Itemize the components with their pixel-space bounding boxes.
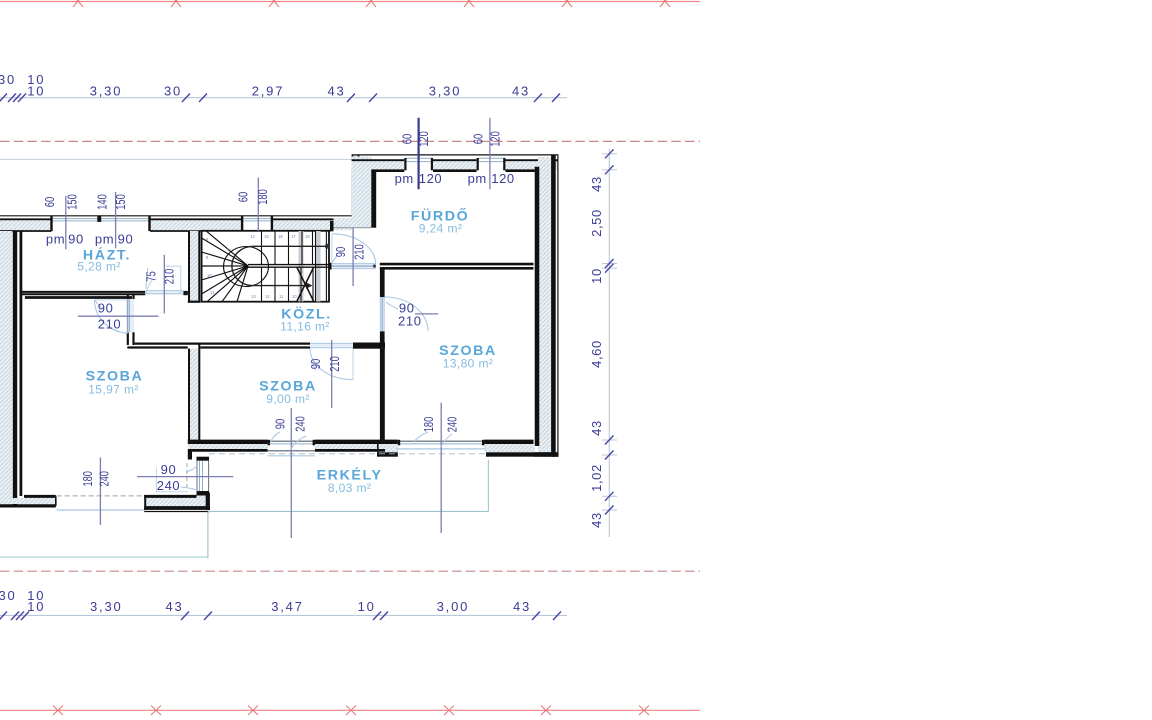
- svg-text:180: 180: [80, 471, 95, 487]
- svg-text:90: 90: [161, 462, 177, 477]
- svg-text:180: 180: [255, 189, 270, 205]
- svg-text:3,30: 3,30: [429, 84, 462, 99]
- svg-text:17: 17: [291, 234, 296, 239]
- svg-text:9,24 m²: 9,24 m²: [419, 222, 462, 236]
- svg-text:15,97 m²: 15,97 m²: [88, 383, 139, 397]
- svg-text:10: 10: [27, 84, 45, 99]
- svg-text:90: 90: [98, 301, 114, 316]
- svg-text:90: 90: [118, 232, 134, 247]
- svg-text:11: 11: [210, 290, 215, 295]
- svg-text:10: 10: [292, 294, 297, 299]
- svg-text:15: 15: [264, 234, 269, 239]
- svg-text:240: 240: [97, 471, 112, 487]
- svg-text:16: 16: [278, 234, 283, 239]
- svg-text:10: 10: [589, 268, 604, 284]
- svg-text:120: 120: [491, 171, 515, 186]
- svg-text:9,00 m²: 9,00 m²: [266, 392, 309, 406]
- svg-text:1,02: 1,02: [589, 464, 604, 492]
- svg-text:90: 90: [273, 419, 288, 430]
- svg-text:43: 43: [513, 599, 531, 614]
- svg-text:2,50: 2,50: [589, 209, 604, 237]
- svg-text:8,03 m²: 8,03 m²: [328, 481, 371, 495]
- svg-text:90: 90: [333, 247, 348, 258]
- svg-text:30: 30: [0, 72, 16, 87]
- svg-text:150: 150: [64, 194, 79, 210]
- svg-text:18: 18: [305, 234, 310, 239]
- svg-text:43: 43: [512, 84, 530, 99]
- svg-text:3,30: 3,30: [90, 599, 123, 614]
- svg-text:13: 13: [251, 294, 256, 299]
- svg-text:4,60: 4,60: [589, 340, 604, 368]
- svg-text:pm: pm: [468, 171, 487, 186]
- svg-text:43: 43: [165, 599, 183, 614]
- svg-text:60: 60: [471, 134, 486, 145]
- svg-text:30: 30: [164, 84, 182, 99]
- svg-text:11,16 m²: 11,16 m²: [280, 320, 330, 334]
- svg-text:3,30: 3,30: [90, 84, 123, 99]
- svg-text:120: 120: [416, 131, 431, 147]
- svg-text:11: 11: [279, 294, 284, 299]
- svg-text:3,00: 3,00: [437, 599, 470, 614]
- svg-text:10: 10: [358, 599, 376, 614]
- svg-text:210: 210: [98, 316, 122, 331]
- svg-text:140: 140: [94, 194, 109, 210]
- svg-text:210: 210: [327, 356, 342, 372]
- svg-text:90: 90: [308, 359, 323, 370]
- svg-text:pm: pm: [46, 232, 65, 247]
- svg-text:pm: pm: [95, 232, 114, 247]
- svg-text:120: 120: [488, 131, 503, 147]
- svg-text:240: 240: [293, 416, 308, 432]
- svg-text:90: 90: [68, 232, 84, 247]
- svg-text:14: 14: [250, 234, 255, 239]
- svg-text:210: 210: [398, 313, 422, 328]
- svg-text:150: 150: [113, 194, 128, 210]
- svg-text:240: 240: [445, 417, 460, 433]
- svg-text:210: 210: [161, 269, 176, 285]
- svg-text:120: 120: [419, 171, 443, 186]
- svg-text:43: 43: [589, 512, 604, 528]
- svg-text:12: 12: [265, 294, 270, 299]
- svg-text:60: 60: [42, 197, 57, 208]
- svg-text:2,97: 2,97: [252, 84, 285, 99]
- svg-text:60: 60: [236, 192, 251, 203]
- svg-text:10: 10: [207, 273, 212, 278]
- svg-text:43: 43: [589, 420, 604, 436]
- svg-text:240: 240: [157, 478, 181, 493]
- svg-text:60: 60: [400, 134, 415, 145]
- svg-text:pm: pm: [395, 171, 414, 186]
- svg-text:180: 180: [421, 417, 436, 433]
- svg-text:43: 43: [327, 84, 345, 99]
- svg-text:5,28 m²: 5,28 m²: [77, 260, 120, 274]
- svg-text:210: 210: [351, 244, 366, 260]
- svg-text:13,80 m²: 13,80 m²: [443, 357, 494, 371]
- svg-text:3,47: 3,47: [271, 599, 304, 614]
- svg-text:10: 10: [27, 599, 45, 614]
- svg-text:75: 75: [143, 271, 158, 282]
- svg-text:43: 43: [589, 176, 604, 192]
- svg-text:30: 30: [0, 588, 17, 603]
